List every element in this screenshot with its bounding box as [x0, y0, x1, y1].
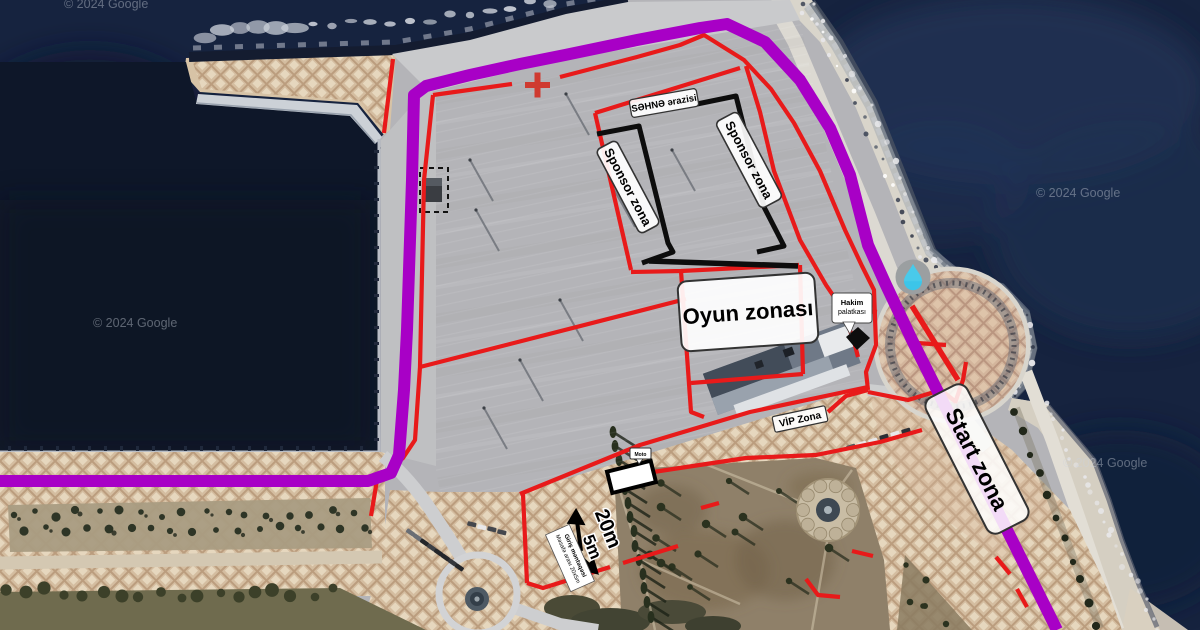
svg-text:Moto: Moto	[635, 452, 647, 458]
svg-text:© 2024 Google: © 2024 Google	[1063, 456, 1147, 470]
svg-text:© 2024 Google: © 2024 Google	[93, 316, 177, 330]
svg-text:Hakim: Hakim	[841, 298, 864, 307]
svg-text:palatkası: palatkası	[838, 309, 866, 316]
svg-text:© 2024 Google: © 2024 Google	[1036, 186, 1120, 200]
svg-text:© 2024 Google: © 2024 Google	[64, 0, 148, 11]
